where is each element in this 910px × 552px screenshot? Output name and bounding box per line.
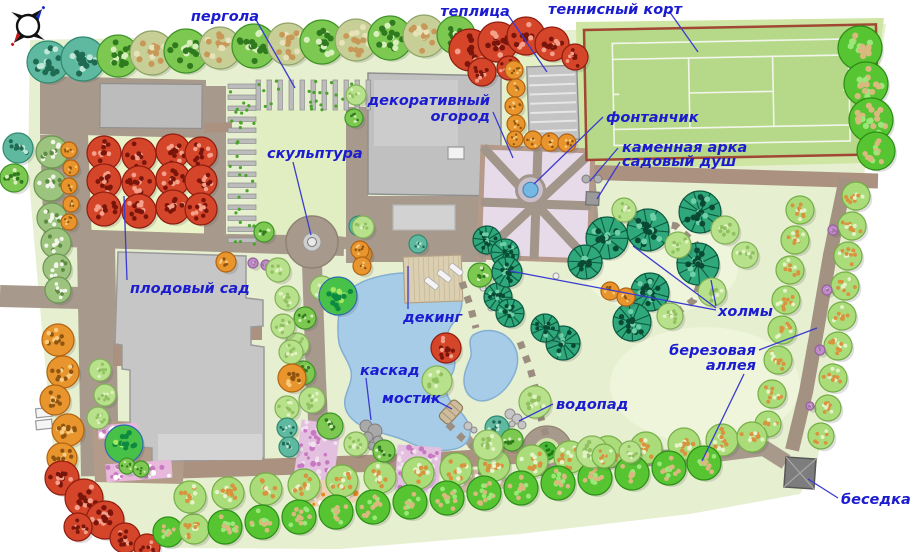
label-text-greenhouse: теплица xyxy=(440,4,510,20)
label-text-orchard: плодовый сад xyxy=(130,281,250,297)
gate xyxy=(36,419,53,430)
label-text-hills: холмы xyxy=(717,304,773,320)
label-text-gazebo: беседка xyxy=(841,492,910,508)
porch-step xyxy=(448,147,464,159)
garage xyxy=(100,84,202,129)
label-text-stone-arch-shower: каменная аркасадовый душ xyxy=(622,140,747,170)
label-text-waterfall: водопад xyxy=(556,397,628,413)
gazebo-structure xyxy=(784,457,816,489)
label-text-cascade: каскад xyxy=(360,363,420,379)
garden-plan: перголатеплицатеннисный кортдекоративный… xyxy=(0,0,910,552)
label-gazebo: беседка xyxy=(808,479,910,508)
label-text-pergola: пергола xyxy=(191,9,259,25)
label-text-bridge: мостик xyxy=(382,391,442,407)
garden-plan-canvas: перголатеплицатеннисный кортдекоративный… xyxy=(0,0,910,552)
label-text-sculpture: скульптура xyxy=(267,146,363,162)
label-text-decking: декинг xyxy=(402,310,463,326)
label-text-fountain: фонтанчик xyxy=(606,110,700,126)
sculpture-plaza xyxy=(286,216,338,268)
decking-platform xyxy=(403,255,465,303)
green-tree xyxy=(0,164,30,194)
below-court-path xyxy=(580,172,878,181)
porch xyxy=(393,205,455,230)
fountain xyxy=(523,182,539,198)
label-text-tennis-court: теннисный корт xyxy=(548,2,684,18)
greenhouse-structure xyxy=(527,65,580,141)
terrace xyxy=(158,434,262,460)
sculpture xyxy=(308,238,317,247)
